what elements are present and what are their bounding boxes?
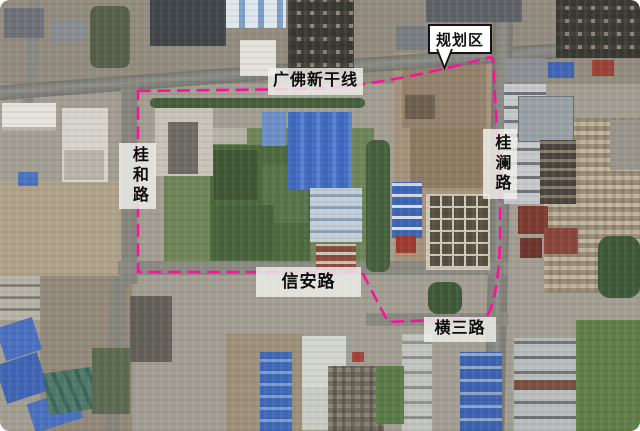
road-label-guilan: 桂澜路	[483, 129, 517, 199]
road-label-text: 桂澜路	[492, 134, 509, 194]
road-label-hengsan: 横三路	[424, 317, 496, 342]
road-label-guihe: 桂和路	[119, 143, 156, 209]
planning-area-callout: 规划区	[428, 24, 492, 54]
road-label-text: 信安路	[282, 273, 336, 291]
planning-boundary-layer	[0, 0, 640, 431]
map-canvas: 广佛新干线 桂和路 桂澜路 信安路 横三路 规划区	[0, 0, 640, 431]
road-label-text: 广佛新干线	[273, 73, 358, 90]
road-label-xinan: 信安路	[256, 267, 361, 297]
road-label-guangfo-new-line: 广佛新干线	[268, 68, 363, 95]
planning-area-callout-text: 规划区	[436, 29, 484, 50]
road-label-text: 横三路	[434, 321, 485, 338]
road-label-text: 桂和路	[129, 146, 146, 206]
